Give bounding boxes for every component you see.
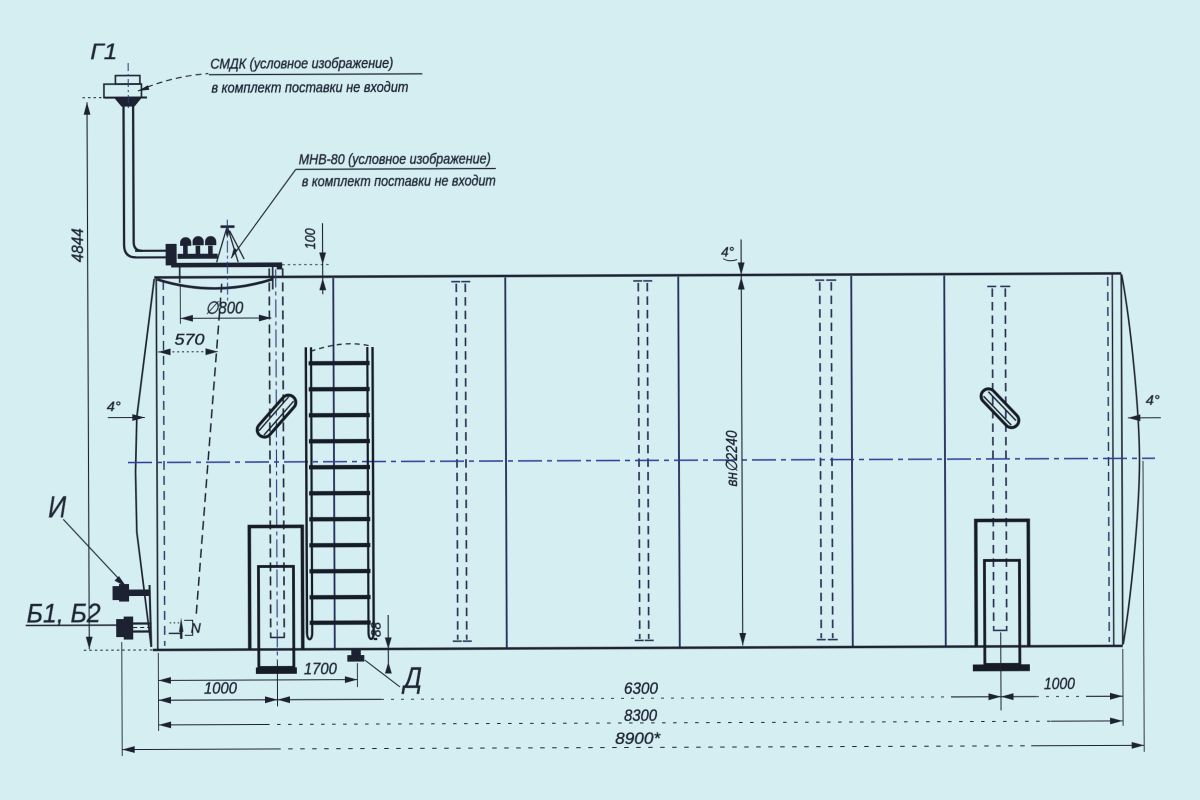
svg-text:100: 100 xyxy=(302,228,319,250)
svg-text:8900*: 8900* xyxy=(615,730,661,748)
svg-text:МНВ-80 (условное изображение): МНВ-80 (условное изображение) xyxy=(299,152,491,169)
svg-text:570: 570 xyxy=(174,332,204,349)
svg-text:6300: 6300 xyxy=(624,680,659,698)
svg-text:1000: 1000 xyxy=(204,680,238,698)
svg-text:Б1, Б2: Б1, Б2 xyxy=(27,598,101,628)
svg-text:в комплект поставки не входит: в комплект поставки не входит xyxy=(211,79,408,97)
svg-text:в комплект поставки не входит: в комплект поставки не входит xyxy=(302,173,496,191)
svg-text:N: N xyxy=(191,620,202,636)
svg-text:∅800: ∅800 xyxy=(205,298,243,318)
svg-text:4844: 4844 xyxy=(69,228,87,262)
svg-text:И: И xyxy=(48,489,67,524)
svg-text:4°: 4° xyxy=(1146,392,1160,408)
svg-text:4°: 4° xyxy=(721,244,734,260)
svg-text:1700: 1700 xyxy=(304,660,338,678)
svg-text:Д: Д xyxy=(401,662,422,695)
svg-text:Г1: Г1 xyxy=(90,39,117,64)
svg-text:88: 88 xyxy=(369,622,384,638)
svg-text:8300: 8300 xyxy=(624,707,658,725)
svg-text:вн∅2240: вн∅2240 xyxy=(724,430,741,486)
svg-text:СМДК (условное изображение): СМДК (условное изображение) xyxy=(210,56,393,73)
svg-text:1000: 1000 xyxy=(1044,675,1076,693)
svg-text:4°: 4° xyxy=(107,398,121,414)
